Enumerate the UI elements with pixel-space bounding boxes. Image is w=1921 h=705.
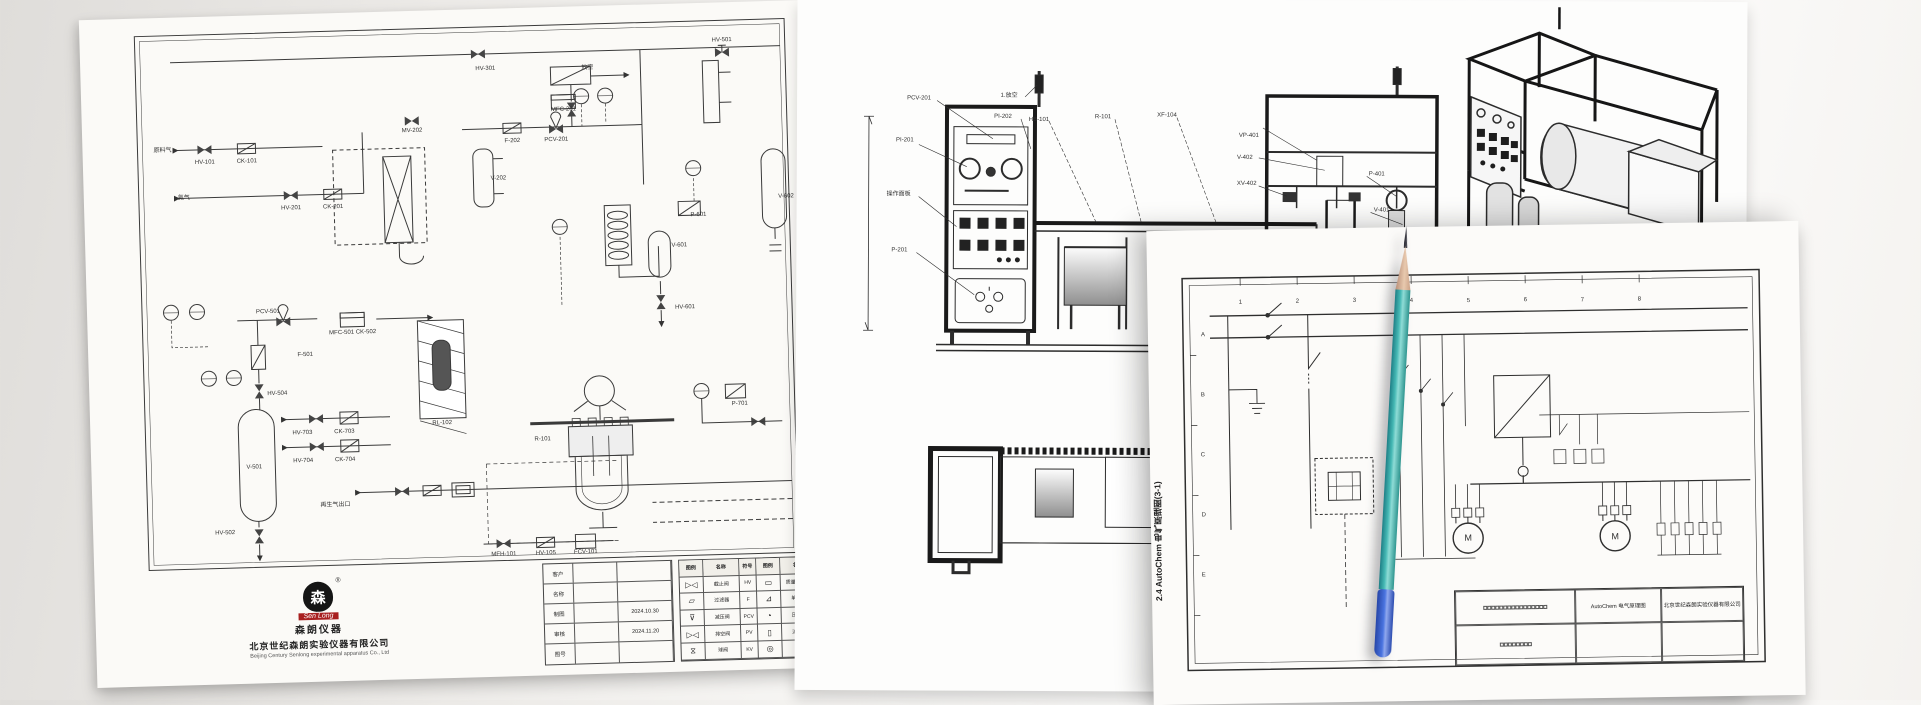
- legend-text: 过滤器: [704, 592, 740, 610]
- field-date: [619, 641, 674, 662]
- equipment-tag: V-402: [1237, 155, 1253, 161]
- equipment-tag: MFC-201: [551, 106, 576, 113]
- equipment-tag: HV-703: [292, 430, 312, 437]
- equipment-tag: D: [1202, 512, 1206, 518]
- legend-symbol-icon: ▯: [758, 624, 782, 641]
- field-date: 2024.11.20: [619, 621, 674, 642]
- field-value: [573, 562, 618, 582]
- equipment-tag: E: [1202, 572, 1206, 578]
- legend-symbol-icon: ▷◁: [681, 626, 705, 643]
- equipment-tag: M: [1464, 534, 1472, 543]
- field-date: [618, 581, 673, 602]
- title-fields-table: 客户名称制图2024.10.30审核2024.11.20图号: [542, 560, 675, 666]
- equipment-tag: V-401: [1374, 207, 1390, 213]
- title-block-grid: [1455, 589, 1576, 625]
- logo-text: Sen Long: [298, 612, 338, 620]
- pencil-body: [1374, 225, 1415, 661]
- legend-text: 减压阀: [705, 609, 741, 627]
- equipment-tag: R-101: [1095, 114, 1111, 120]
- equipment-tag: P-401: [1369, 171, 1385, 177]
- legend-symbol-icon: ◎: [758, 641, 782, 658]
- electrical-title-block: AutoChem 电气原理图 北京世纪森朗实验仪器有限公司: [1454, 586, 1745, 667]
- equipment-tag: 8: [1638, 296, 1641, 302]
- equipment-tag: 1.放空: [1001, 93, 1018, 99]
- electrical-sheet: 2.4 AutoChem 电气原理图(3-1) AutoChem 电气原理图 北…: [1146, 221, 1805, 705]
- equipment-tag: FCV-101: [574, 549, 598, 556]
- equipment-tag: 7: [1581, 297, 1584, 303]
- legend-header: 符号: [739, 559, 756, 576]
- pencil-shaft: [1379, 289, 1411, 589]
- equipment-tag: PI-202: [994, 114, 1012, 120]
- equipment-tag: P-601: [690, 212, 706, 218]
- title-field-row: 图号: [545, 641, 674, 665]
- equipment-tag: PCV-201: [544, 137, 568, 144]
- company-block: 森 ® Sen Long 森朗仪器 北京世纪森朗实验仪器有限公司 Beijing…: [192, 566, 445, 673]
- title-block-grid-2: [1456, 623, 1577, 665]
- equipment-tag: PCV-201: [907, 95, 931, 101]
- equipment-tag: 1: [1239, 300, 1242, 306]
- field-value: [575, 642, 620, 663]
- field-date: [617, 561, 672, 582]
- field-label: 客户: [543, 564, 574, 584]
- equipment-tag: HB-101: [1029, 117, 1049, 123]
- equipment-tag: B: [1201, 392, 1205, 398]
- field-date: 2024.10.30: [618, 601, 673, 622]
- field-label: 审核: [545, 624, 576, 644]
- equipment-tag: P-701: [732, 401, 748, 407]
- equipment-tag: V-202: [490, 175, 506, 181]
- drawing-name: AutoChem 电气原理图: [1575, 588, 1662, 623]
- equipment-tag: PI-201: [896, 137, 914, 143]
- senlong-logo-icon: 森 ®: [303, 581, 334, 612]
- legend-text: F: [740, 592, 757, 609]
- brand-name: 森朗仪器: [295, 620, 343, 636]
- equipment-tag: VP-401: [1239, 133, 1259, 139]
- equipment-tag: 再生气出口: [320, 502, 350, 509]
- equipment-tag: 放空: [581, 65, 593, 71]
- equipment-tag: 氮气: [178, 195, 190, 201]
- legend-symbol-icon: ▱: [680, 593, 704, 610]
- field-value: [575, 622, 620, 642]
- field-value: [574, 582, 619, 602]
- equipment-tag: V-501: [246, 464, 262, 470]
- equipment-tag: HV-105: [536, 550, 556, 557]
- legend-symbol-icon: ⊿: [757, 591, 781, 608]
- equipment-tag: CK-201: [323, 204, 344, 211]
- equipment-tag: HV-501: [712, 37, 732, 44]
- equipment-tag: V-602: [778, 193, 794, 199]
- pencil-cap: [1374, 589, 1395, 658]
- equipment-tag: 2: [1296, 299, 1299, 305]
- equipment-tag: XV-402: [1237, 181, 1257, 187]
- field-label: 名称: [544, 584, 575, 604]
- equipment-tag: HV-504: [267, 391, 287, 398]
- logo-glyph: 森: [310, 586, 326, 607]
- legend-symbol-icon: ⧖: [681, 643, 705, 660]
- legend-symbol-icon: ⊽: [681, 610, 705, 627]
- senlong-logo: 森 ® Sen Long 森朗仪器: [294, 581, 343, 636]
- legend-symbol-icon: ▭: [757, 574, 781, 591]
- field-value: [574, 602, 619, 622]
- equipment-tag: F-202: [504, 138, 520, 144]
- photo-of-engineering-drawings: { "pid_sheet": { "company": { "logo_glyp…: [0, 0, 1921, 700]
- equipment-tag: CK-704: [335, 457, 356, 464]
- equipment-tag: A: [1201, 332, 1205, 338]
- legend-text: 排空阀: [705, 625, 741, 643]
- equipment-tag: 3: [1353, 298, 1356, 304]
- legend-text: 球阀: [705, 642, 741, 660]
- equipment-tag: CK-703: [334, 429, 355, 436]
- legend-symbol-icon: ◔: [757, 608, 781, 625]
- legend-text: PV: [741, 625, 758, 642]
- equipment-tag: V-601: [671, 242, 687, 248]
- equipment-tag: MFH-101: [491, 551, 516, 558]
- equipment-tag: XF-104: [1157, 113, 1177, 119]
- pencil-wood-cone: [1395, 246, 1412, 291]
- legend-text: PCV: [741, 608, 758, 625]
- legend-symbol-icon: ▷◁: [680, 577, 704, 594]
- equipment-tag: HV-101: [195, 159, 215, 166]
- legend-header: 图例: [679, 560, 703, 577]
- equipment-tag: HV-704: [293, 458, 313, 465]
- equipment-tag: 原料气: [153, 148, 171, 155]
- legend-text: HV: [740, 575, 757, 592]
- legend-text: 截止阀: [704, 576, 740, 594]
- equipment-tag: CK-101: [237, 158, 258, 165]
- pencil-lead-tip: [1403, 226, 1408, 248]
- equipment-tag: F-501: [297, 352, 313, 358]
- equipment-tag: HV-301: [475, 66, 495, 73]
- field-label: 制图: [544, 604, 575, 624]
- legend-header: 图例: [756, 558, 780, 575]
- equipment-tag: PCV-501: [256, 309, 280, 316]
- pid-title-block: 森 ® Sen Long 森朗仪器 北京世纪森朗实验仪器有限公司 Beijing…: [192, 556, 807, 673]
- pid-drawing: [79, 0, 818, 576]
- equipment-tag: 6: [1524, 297, 1527, 303]
- equipment-tag: P-201: [891, 247, 907, 253]
- equipment-tag: RL-102: [432, 420, 452, 427]
- legend-text: KV: [741, 641, 758, 658]
- equipment-tag: 5: [1467, 298, 1470, 304]
- equipment-tag: HV-502: [215, 530, 235, 537]
- pid-sheet: 森 ® Sen Long 森朗仪器 北京世纪森朗实验仪器有限公司 Beijing…: [79, 0, 821, 688]
- equipment-tag: HV-201: [281, 205, 301, 212]
- equipment-tag: HV-601: [675, 304, 695, 311]
- equipment-tag: 操作面板: [887, 191, 911, 197]
- equipment-tag: MV-202: [402, 128, 423, 135]
- equipment-tag: C: [1201, 452, 1205, 458]
- registered-mark: ®: [335, 577, 340, 584]
- equipment-tag: R-101: [534, 436, 551, 442]
- equipment-tag: M: [1611, 532, 1619, 541]
- legend-header: 名称: [703, 559, 739, 577]
- field-label: 图号: [545, 644, 576, 665]
- title-block-company: 北京世纪森朗实验仪器有限公司: [1661, 587, 1744, 622]
